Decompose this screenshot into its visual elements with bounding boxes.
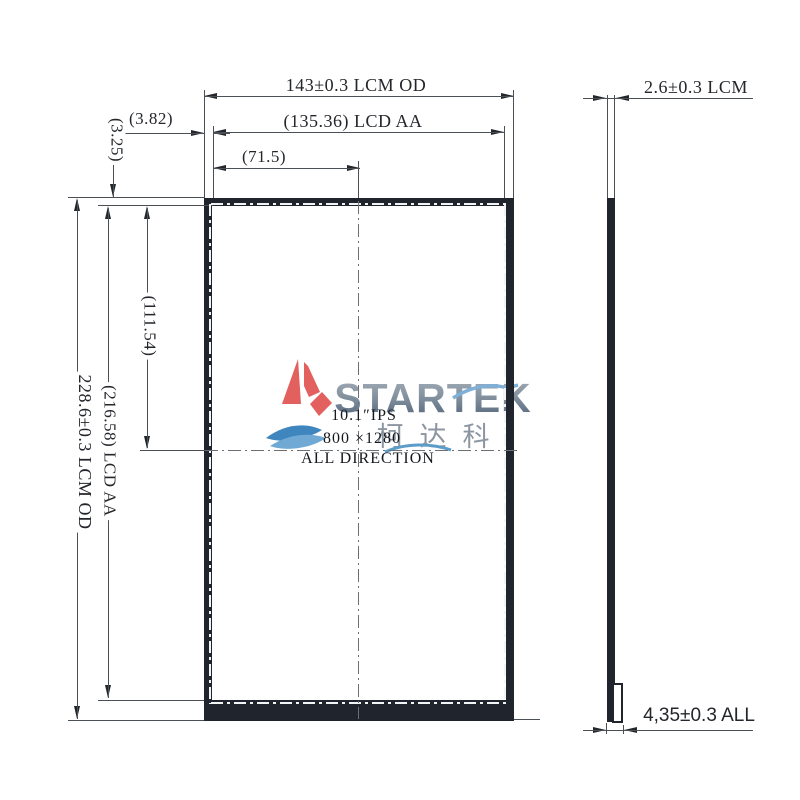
bezel-right (506, 198, 514, 721)
centerline-extension-top (358, 161, 359, 198)
dim-label-total-thickness: 4,35±0.3 ALL (643, 706, 755, 725)
extension-line (68, 197, 204, 198)
dimension-line-thickness (583, 98, 753, 99)
extension-line (504, 126, 505, 198)
active-area-border-right (504, 204, 506, 704)
lcd-side-view-body (607, 198, 615, 722)
panel-direction-text: ALL DIRECTION (301, 451, 435, 467)
active-area-border-top (211, 203, 507, 205)
dim-label-edge-gap-h: (3.82) (129, 110, 173, 127)
extension-line (68, 720, 204, 721)
leader-line (213, 133, 230, 134)
dim-label-aa-width: (135.36) LCD AA (284, 112, 423, 130)
dim-label-edge-gap-v: (3.25) (109, 115, 126, 165)
dimension-line-half-width (213, 168, 360, 169)
lcm-outline-drawing: STARTEK 柯达科 10.1″IPS 800 ×1280 ALL DIREC… (0, 0, 800, 800)
dim-label-half-height: (111.54) (142, 293, 159, 360)
dimension-line-total-thickness (583, 730, 753, 731)
dim-label-half-width: (71.5) (242, 148, 286, 165)
extension-line (213, 126, 214, 198)
extension-line (204, 90, 205, 198)
dimension-line-od-width (204, 96, 514, 97)
side-view-connector-bump (612, 683, 623, 723)
active-area-border-left (209, 204, 211, 704)
dim-label-thickness: 2.6±0.3 LCM (644, 78, 748, 96)
active-area-border-bottom (211, 702, 507, 704)
extension-line (607, 95, 608, 198)
panel-resolution-text: 800 ×1280 (323, 431, 401, 447)
extension-line (98, 700, 204, 701)
centerline-extension-left (140, 450, 205, 451)
extension-line (513, 90, 514, 198)
extension-line (614, 95, 615, 198)
dim-label-aa-height: (216.58) LCD AA (102, 382, 119, 520)
dim-label-od-height: 228.6±0.3 LCM OD (76, 372, 94, 533)
extension-line (514, 719, 540, 720)
dim-label-od-width: 143±0.3 LCM OD (286, 76, 426, 94)
dimension-line-aa-width (213, 132, 504, 133)
panel-size-text: 10.1″IPS (331, 408, 397, 424)
extension-line (606, 723, 607, 734)
extension-line (98, 205, 213, 206)
